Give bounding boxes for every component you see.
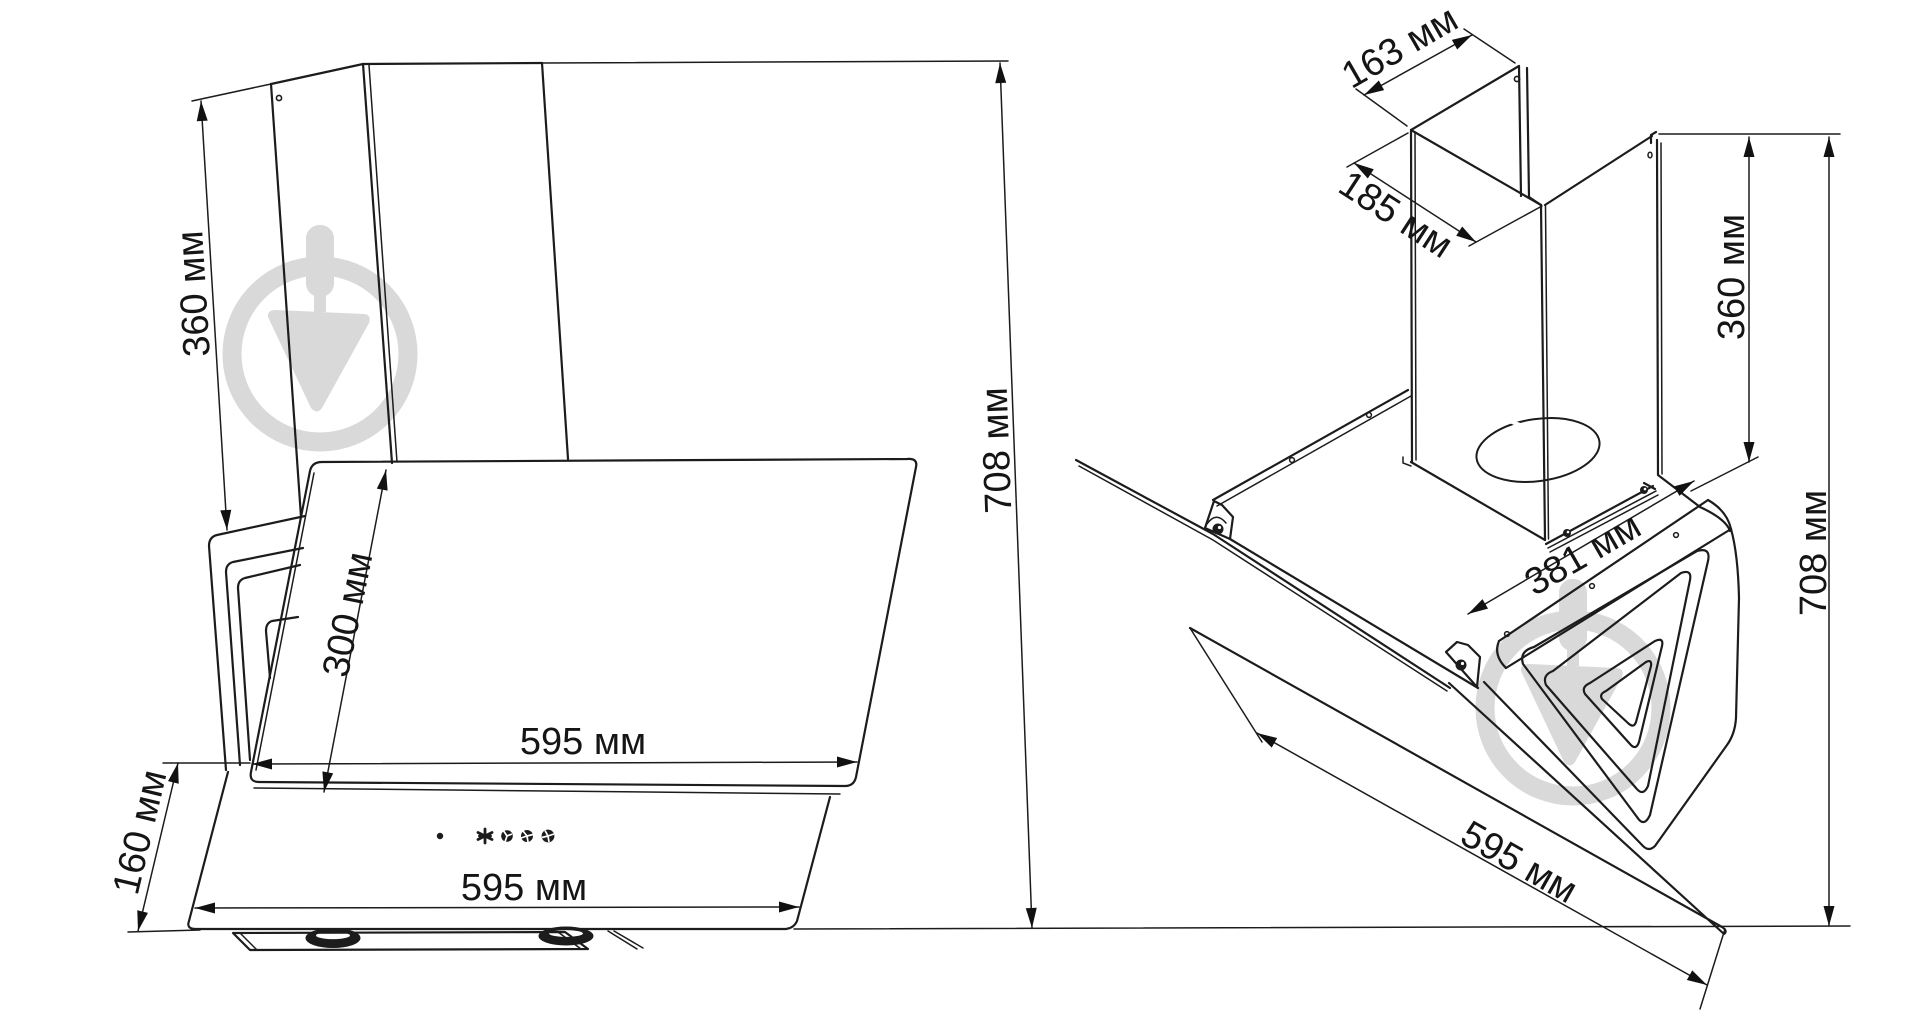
- svg-text:360 мм: 360 мм: [169, 229, 219, 358]
- svg-text:708 мм: 708 мм: [974, 387, 1021, 515]
- svg-text:708 мм: 708 мм: [1793, 490, 1835, 616]
- svg-text:595 мм: 595 мм: [520, 721, 646, 763]
- svg-text:360 мм: 360 мм: [1711, 214, 1753, 340]
- svg-text:595 мм: 595 мм: [461, 867, 587, 909]
